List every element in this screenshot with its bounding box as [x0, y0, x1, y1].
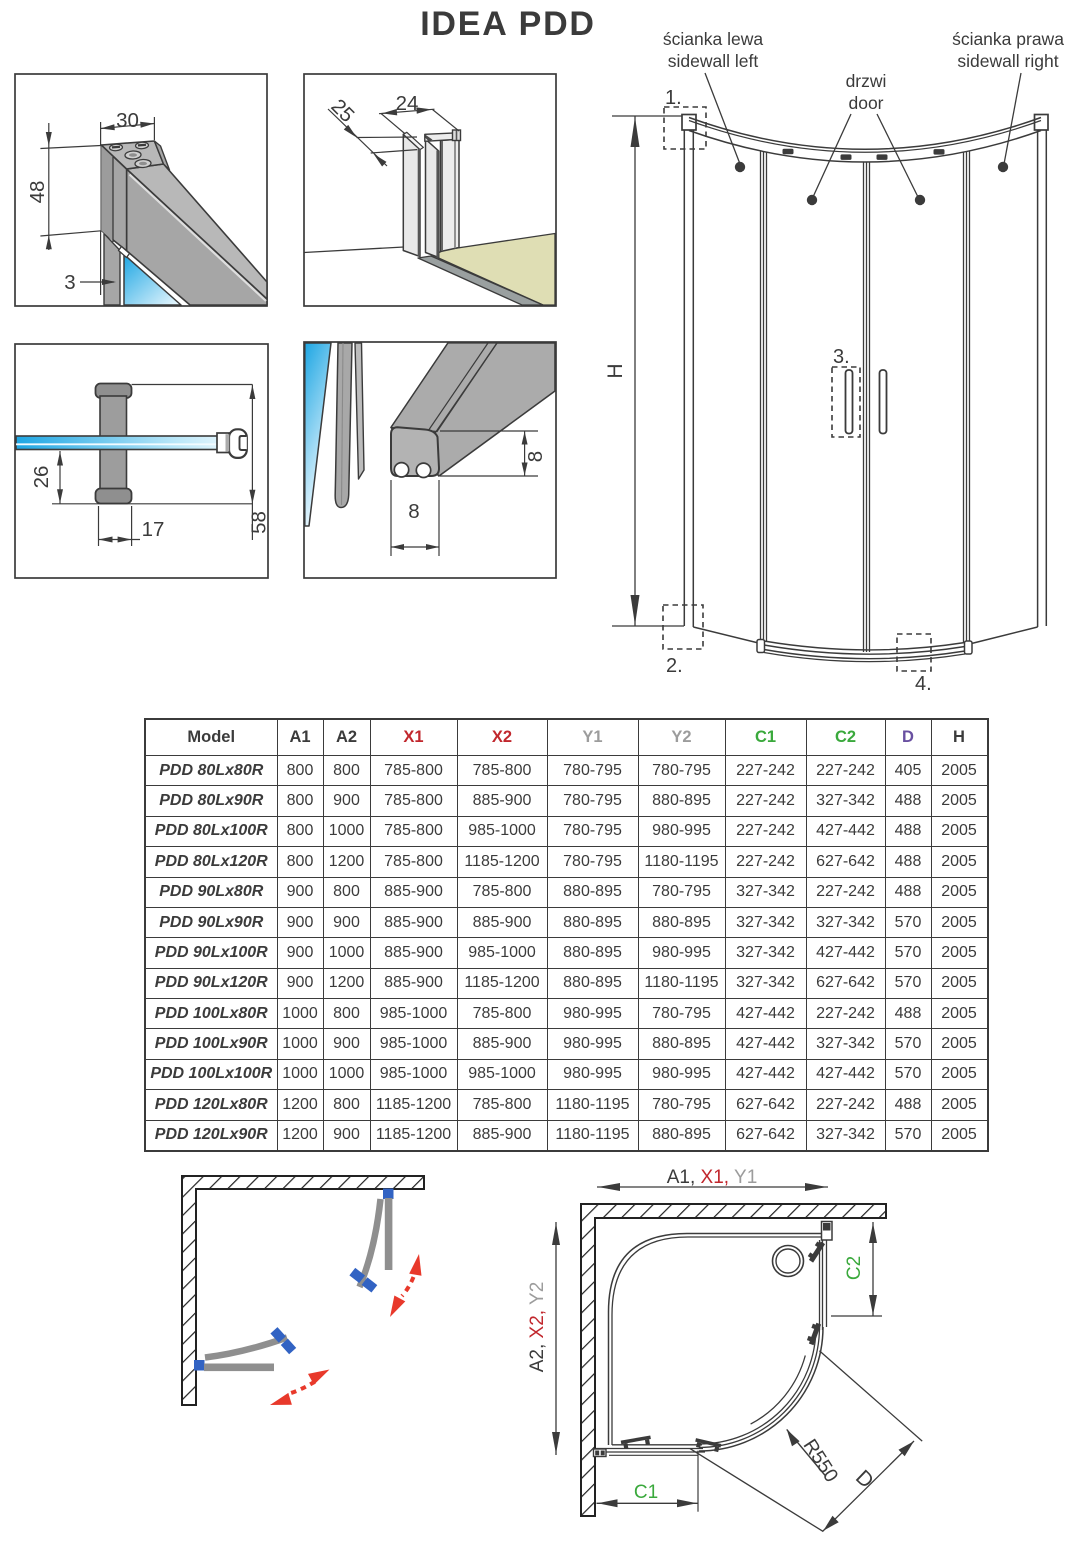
- svg-text:door: door: [848, 93, 883, 113]
- svg-text:ścianka prawa: ścianka prawa: [952, 29, 1064, 49]
- svg-text:C2: C2: [844, 1256, 865, 1280]
- svg-text:sidewall right: sidewall right: [957, 51, 1058, 71]
- svg-text:26: 26: [30, 466, 53, 489]
- svg-text:1.: 1.: [665, 87, 682, 109]
- svg-text:C1: C1: [634, 1482, 658, 1503]
- svg-text:3.: 3.: [833, 346, 850, 368]
- svg-text:A1, X1, Y1: A1, X1, Y1: [667, 1167, 758, 1188]
- svg-text:17: 17: [142, 518, 165, 541]
- svg-text:H: H: [604, 363, 627, 378]
- svg-text:R550: R550: [799, 1435, 843, 1486]
- svg-text:sidewall left: sidewall left: [668, 51, 759, 71]
- svg-text:4.: 4.: [915, 673, 932, 695]
- svg-text:3: 3: [64, 271, 75, 294]
- svg-text:8: 8: [524, 451, 547, 462]
- svg-text:24: 24: [396, 92, 419, 115]
- svg-text:58: 58: [248, 511, 271, 534]
- svg-text:drzwi: drzwi: [846, 71, 887, 91]
- svg-text:30: 30: [116, 109, 139, 132]
- svg-text:8: 8: [408, 500, 419, 523]
- svg-text:A2, X2, Y2: A2, X2, Y2: [527, 1282, 548, 1373]
- svg-text:ścianka lewa: ścianka lewa: [663, 29, 763, 49]
- svg-text:48: 48: [26, 181, 49, 204]
- svg-text:D: D: [851, 1466, 878, 1493]
- svg-text:2.: 2.: [666, 655, 683, 677]
